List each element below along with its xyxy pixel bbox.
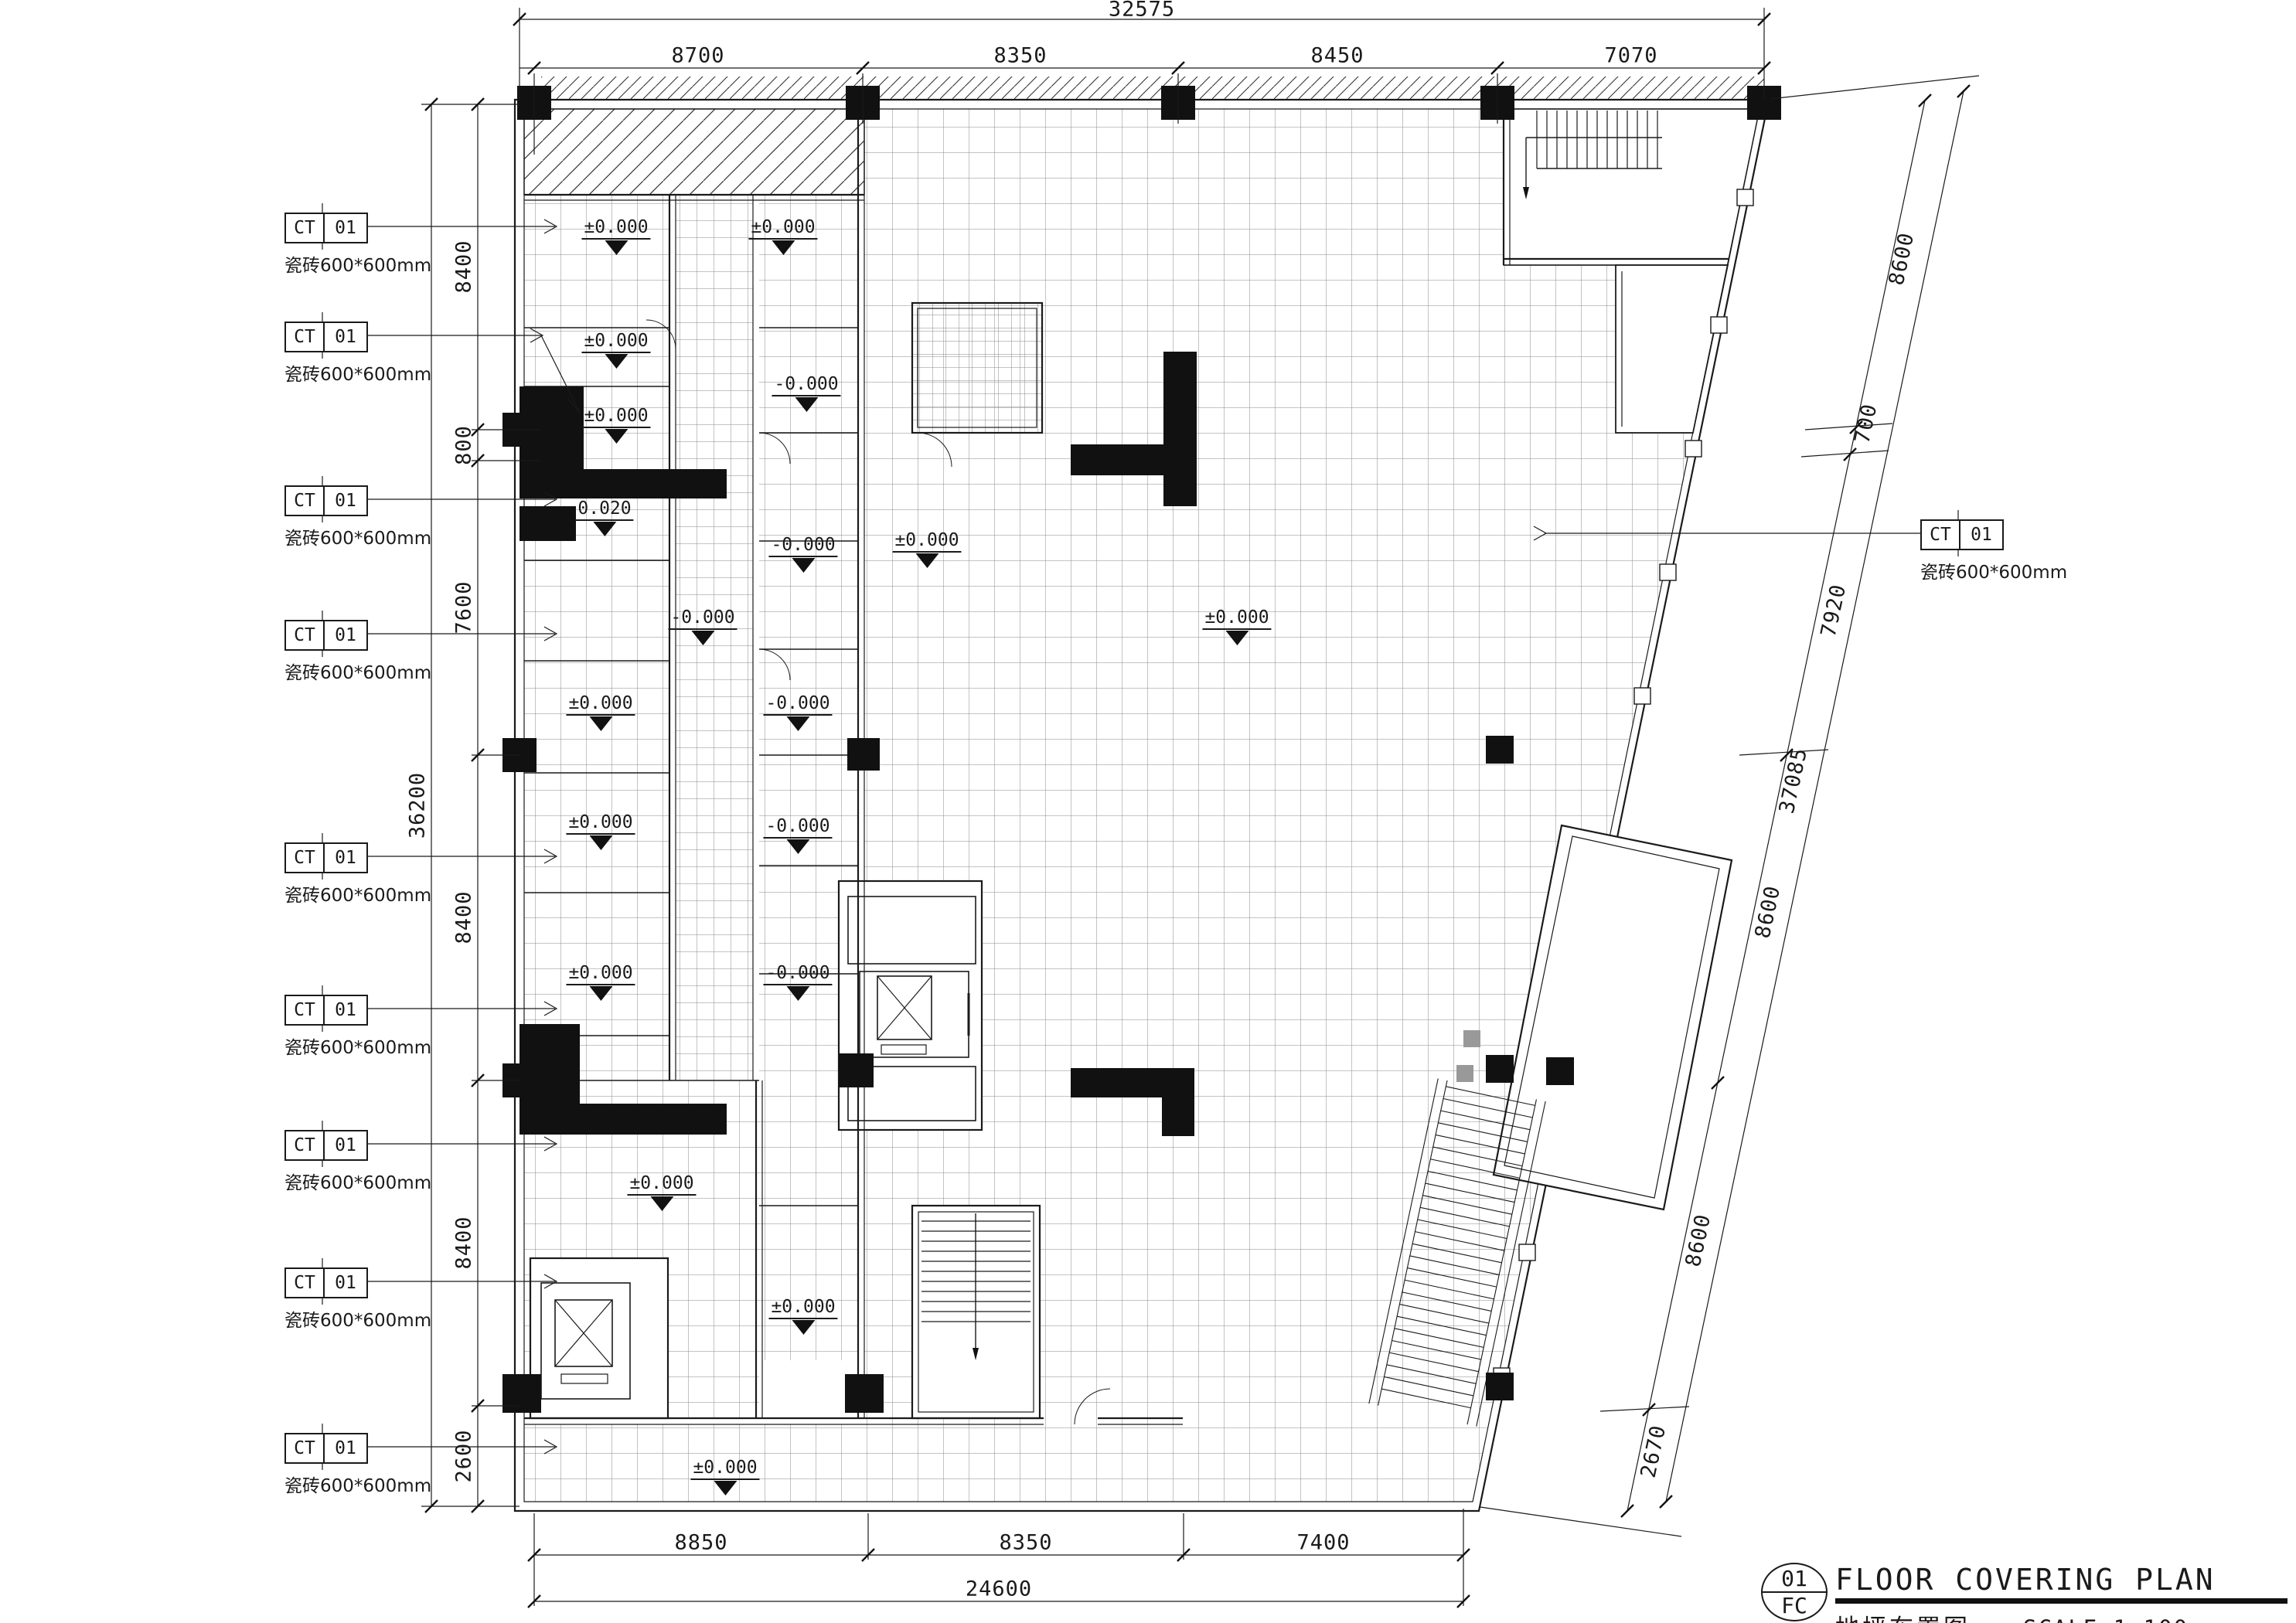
floor-tile-fields xyxy=(524,109,1759,1502)
drawing-discipline: FC xyxy=(1763,1593,1826,1618)
level-marker: ±0.000 xyxy=(1202,609,1271,645)
dim-top-overall: 32575 xyxy=(1109,0,1175,22)
level-marker: ±0.000 xyxy=(748,219,817,255)
level-marker: 0.020 xyxy=(575,500,633,536)
finish-tag: CT01瓷砖600*600mm xyxy=(284,1433,431,1497)
drawing-number-bubble: 01 FC xyxy=(1761,1563,1828,1621)
level-triangle-icon xyxy=(605,429,628,444)
level-marker: ±0.000 xyxy=(768,1298,837,1335)
dim-top-seg: 8450 xyxy=(1310,44,1364,68)
dim-bottom-seg: 7400 xyxy=(1296,1531,1350,1555)
level-marker: ±0.000 xyxy=(627,1175,696,1211)
level-marker: ±0.000 xyxy=(566,965,635,1001)
dim-left-seg: 7600 xyxy=(452,580,476,634)
drawing-title-en: FLOOR COVERING PLAN xyxy=(1835,1563,2287,1597)
level-triangle-icon xyxy=(589,986,612,1001)
finish-tag: CT01瓷砖600*600mm xyxy=(284,213,431,277)
level-marker: ±0.000 xyxy=(690,1459,759,1495)
dim-left-seg: 8400 xyxy=(452,890,476,944)
drawing-sheet: 32575 8700 8350 8450 7070 36200 8400 800… xyxy=(0,0,2296,1623)
level-triangle-icon xyxy=(786,839,809,854)
level-triangle-icon xyxy=(786,986,809,1001)
level-triangle-icon xyxy=(589,716,612,731)
level-marker: ±0.000 xyxy=(566,695,635,731)
level-marker: -0.000 xyxy=(763,965,832,1001)
finish-tag: CT01瓷砖600*600mm xyxy=(284,485,431,550)
level-marker: -0.000 xyxy=(763,695,832,731)
level-triangle-icon xyxy=(691,631,714,645)
level-marker: -0.000 xyxy=(668,609,737,645)
level-marker: -0.000 xyxy=(768,536,837,573)
dim-left-seg: 800 xyxy=(452,425,476,465)
drawing-number: 01 xyxy=(1763,1566,1826,1593)
dim-left-seg: 2600 xyxy=(452,1429,476,1482)
dim-left-seg: 8400 xyxy=(452,1216,476,1269)
dim-top-seg: 7070 xyxy=(1604,44,1657,68)
title-underline xyxy=(1835,1598,2287,1604)
dim-left-seg: 8400 xyxy=(452,240,476,293)
level-triangle-icon xyxy=(772,240,795,255)
level-triangle-icon xyxy=(786,716,809,731)
dim-bottom-seg: 8850 xyxy=(674,1531,727,1555)
finish-tag: CT01瓷砖600*600mm xyxy=(284,620,431,684)
dim-top-seg: 8700 xyxy=(671,44,724,68)
level-triangle-icon xyxy=(792,1320,815,1335)
level-marker: -0.000 xyxy=(772,376,840,412)
level-triangle-icon xyxy=(605,240,628,255)
level-triangle-icon xyxy=(714,1481,737,1495)
level-triangle-icon xyxy=(593,522,616,536)
finish-tag: CT01瓷砖600*600mm xyxy=(284,322,431,386)
level-triangle-icon xyxy=(589,835,612,850)
title-block: 01 FC FLOOR COVERING PLAN 地坪布置图 SCALE 1:… xyxy=(1761,1563,2287,1623)
level-marker: ±0.000 xyxy=(892,532,961,568)
finish-tag: CT01瓷砖600*600mm xyxy=(284,842,431,907)
level-triangle-icon xyxy=(650,1196,673,1211)
level-marker: ±0.000 xyxy=(581,332,650,369)
finish-tag: CT01瓷砖600*600mm xyxy=(284,995,431,1059)
dim-bottom-seg: 8350 xyxy=(999,1531,1052,1555)
level-triangle-icon xyxy=(792,558,815,573)
level-marker: ±0.000 xyxy=(581,219,650,255)
drawing-scale: SCALE 1:100 xyxy=(2023,1615,2189,1623)
level-marker: -0.000 xyxy=(763,818,832,854)
finish-tag: CT01瓷砖600*600mm xyxy=(284,1267,431,1332)
level-marker: ±0.000 xyxy=(566,814,635,850)
dim-left-overall: 36200 xyxy=(406,772,430,839)
level-triangle-icon xyxy=(605,354,628,369)
finish-tag: CT01瓷砖600*600mm xyxy=(1920,519,2067,584)
level-triangle-icon xyxy=(795,397,818,412)
dim-bottom-overall: 24600 xyxy=(966,1577,1032,1601)
drawing-title-cn: 地坪布置图 xyxy=(1835,1608,1971,1623)
dim-top-seg: 8350 xyxy=(993,44,1047,68)
finish-tag: CT01瓷砖600*600mm xyxy=(284,1130,431,1194)
level-triangle-icon xyxy=(915,553,938,568)
level-triangle-icon xyxy=(1225,631,1248,645)
level-marker: ±0.000 xyxy=(581,407,650,444)
